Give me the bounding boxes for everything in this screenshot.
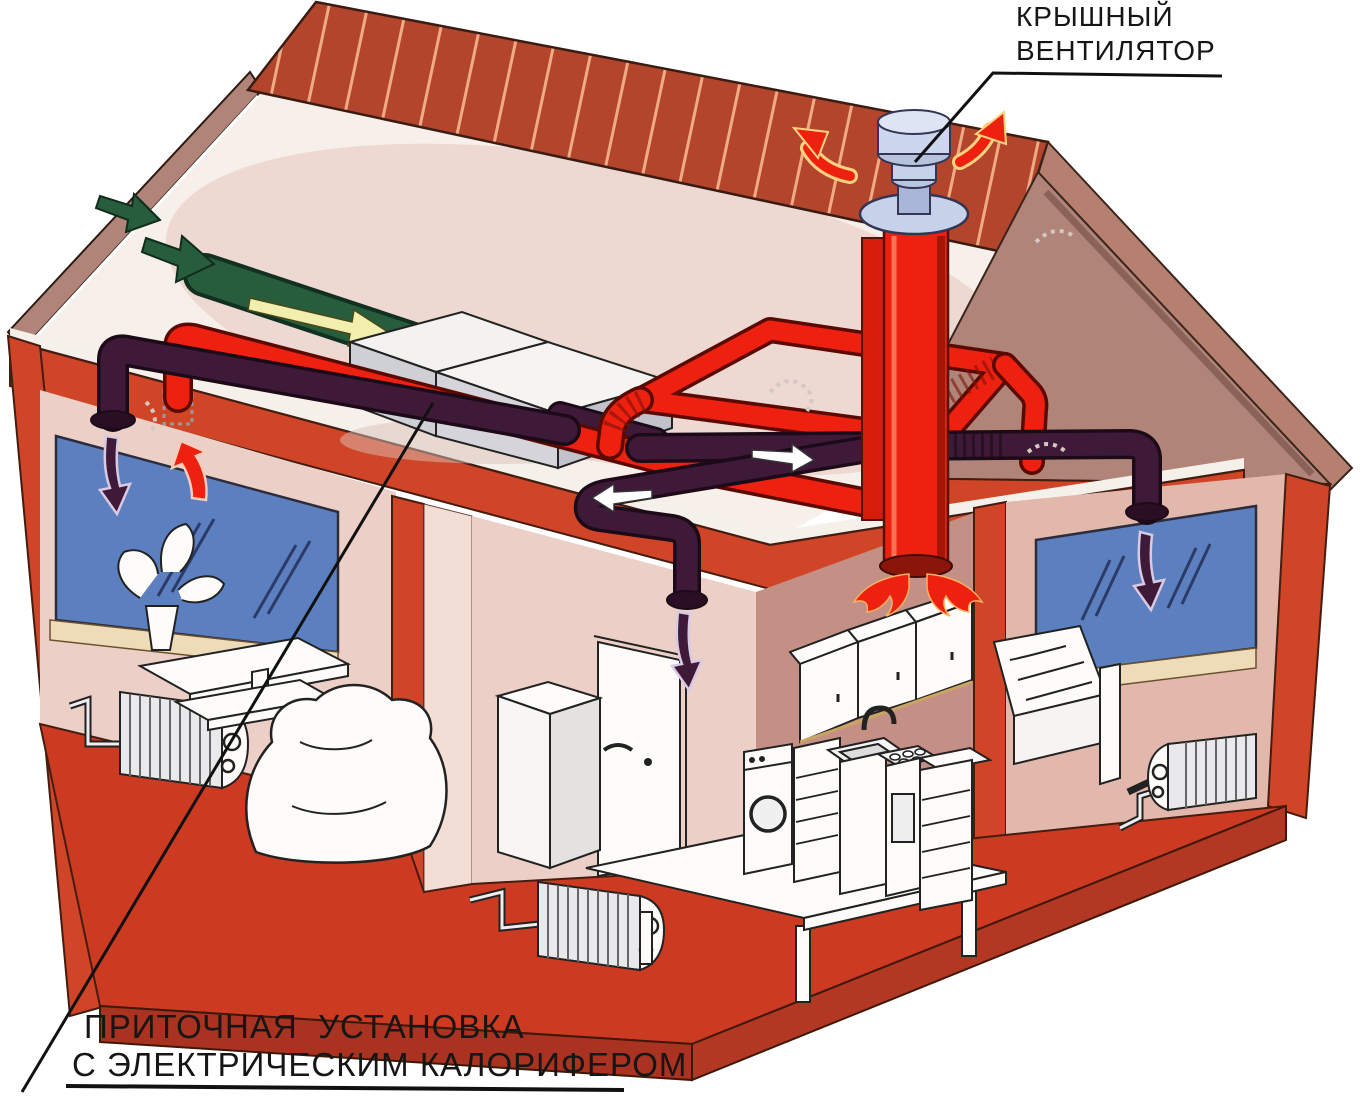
supply-unit-label-underline — [66, 1086, 624, 1090]
bed-footboard — [1100, 664, 1120, 784]
supply-unit-label-line1: ПРИТОЧНАЯ УСТАНОВКА — [84, 1008, 525, 1045]
ceiling-diffuser — [1126, 503, 1168, 521]
washing-machine — [744, 744, 792, 874]
sink-cabinet — [840, 752, 886, 894]
fan-cap-top — [878, 110, 950, 134]
wardrobe-cabinet — [498, 682, 600, 868]
riser-back-duct — [862, 238, 884, 520]
ceiling-diffuser — [667, 591, 707, 609]
ceiling-diffuser — [91, 411, 135, 429]
ventilation-diagram: КРЫШНЫЙ ВЕНТИЛЯТОР ПРИТОЧНАЯ УСТАНОВКА С… — [0, 0, 1364, 1096]
riser-inlet-rim — [880, 555, 952, 577]
door — [598, 642, 680, 876]
drawer-unit — [794, 738, 840, 882]
washer-door — [751, 797, 785, 831]
radiator-body — [1168, 734, 1256, 810]
supply-unit-label-line2: С ЭЛЕКТРИЧЕСКИМ КАЛОРИФЕРОМ — [72, 1046, 687, 1083]
kitchen-end-cabinet — [920, 760, 972, 910]
door-knob — [644, 758, 652, 766]
house-cutaway-scene: КРЫШНЫЙ ВЕНТИЛЯТОР ПРИТОЧНАЯ УСТАНОВКА С… — [0, 0, 1364, 1096]
oven-door — [892, 794, 914, 842]
roof-fan-label-line2: ВЕНТИЛЯТОР — [1016, 35, 1216, 66]
radiator-ribs — [1186, 736, 1246, 808]
roof-fan-label-line1: КРЫШНЫЙ — [1016, 1, 1174, 32]
table-leg — [796, 926, 810, 1002]
